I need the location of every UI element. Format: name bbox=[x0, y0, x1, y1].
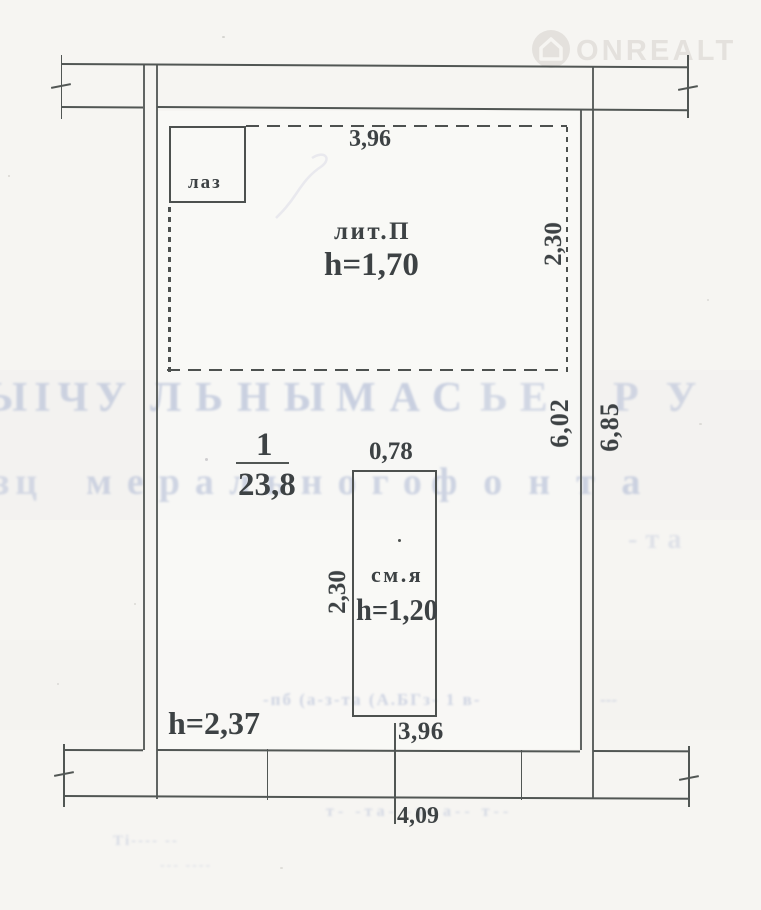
svg-text:ONREALT: ONREALT bbox=[576, 35, 736, 67]
